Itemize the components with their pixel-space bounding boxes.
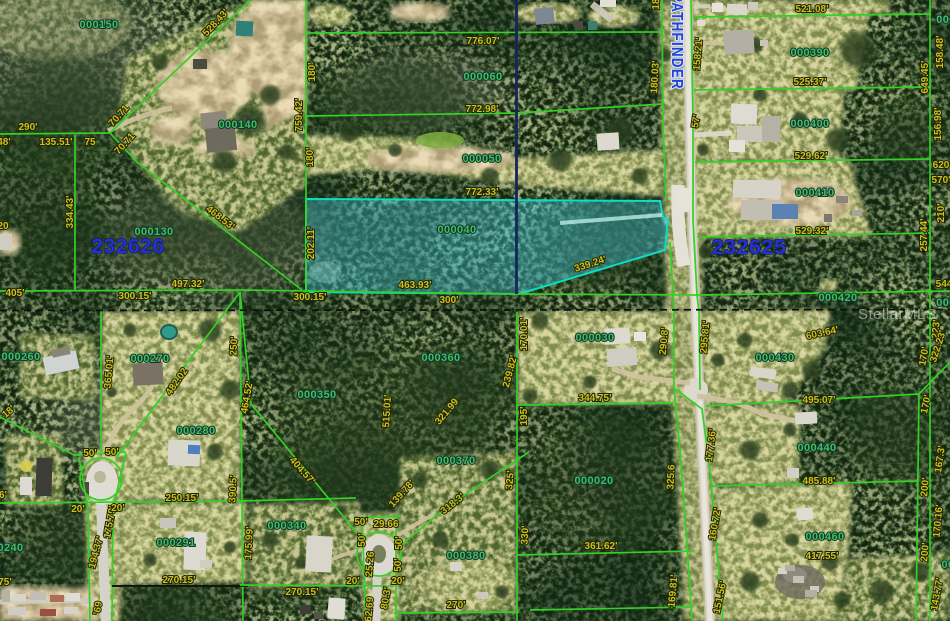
svg-text:270.15': 270.15': [163, 575, 196, 586]
svg-text:000040: 000040: [437, 224, 476, 236]
svg-text:000150: 000150: [79, 19, 118, 31]
svg-text:290': 290': [18, 122, 37, 133]
svg-text:20': 20': [346, 576, 360, 587]
svg-text:000291: 000291: [156, 537, 195, 549]
svg-text:000400: 000400: [790, 118, 829, 130]
svg-text:232625: 232625: [712, 236, 787, 259]
svg-text:515.01': 515.01': [381, 394, 394, 427]
svg-text:200': 200': [919, 542, 932, 562]
svg-text:48': 48': [0, 137, 11, 148]
svg-text:135.51': 135.51': [40, 137, 73, 148]
svg-text:162.69: 162.69: [363, 596, 377, 621]
svg-text:417.55': 417.55': [806, 551, 839, 562]
svg-text:250.15': 250.15': [166, 493, 199, 504]
svg-text:00: 00: [941, 559, 950, 571]
svg-text:270': 270': [446, 600, 465, 611]
svg-text:000020: 000020: [574, 475, 613, 487]
svg-text:180': 180': [307, 62, 318, 81]
svg-text:257.44': 257.44': [919, 219, 930, 252]
svg-text:485.88': 485.88': [803, 476, 836, 487]
svg-text:195': 195': [519, 406, 530, 425]
svg-text:232626: 232626: [92, 235, 165, 258]
svg-text:000050: 000050: [462, 153, 501, 165]
svg-text:25.26: 25.26: [364, 551, 377, 577]
svg-text:759.42': 759.42': [294, 99, 305, 132]
svg-text:776.07': 776.07': [467, 36, 500, 47]
svg-text:000410: 000410: [795, 187, 834, 199]
svg-text:20': 20': [391, 576, 405, 587]
svg-text:000370: 000370: [436, 455, 475, 467]
svg-text:180': 180': [305, 147, 316, 166]
svg-text:75: 75: [84, 137, 96, 148]
svg-text:521.08': 521.08': [796, 4, 829, 15]
svg-text:000380: 000380: [446, 550, 485, 562]
svg-text:270.15': 270.15': [286, 587, 319, 598]
svg-text:000270: 000270: [130, 353, 169, 365]
svg-text:000420: 000420: [818, 292, 857, 304]
svg-text:300.15': 300.15': [294, 292, 327, 303]
svg-text:000440: 000440: [797, 442, 836, 454]
svg-text:000060: 000060: [463, 71, 502, 83]
svg-text:000280: 000280: [176, 425, 215, 437]
svg-text:344.75': 344.75': [579, 393, 612, 404]
svg-text:200': 200': [919, 477, 932, 497]
svg-text:000140: 000140: [218, 119, 257, 131]
svg-text:000340: 000340: [267, 520, 306, 532]
svg-text:000350: 000350: [297, 389, 336, 401]
svg-text:156.98': 156.98': [933, 108, 944, 141]
svg-text:50': 50': [83, 448, 97, 459]
svg-text:20': 20': [71, 504, 85, 515]
svg-text:158.48': 158.48': [935, 36, 946, 69]
svg-text:000: 000: [936, 14, 950, 26]
svg-text:300.15': 300.15': [119, 291, 152, 302]
svg-text:20': 20': [111, 503, 125, 514]
svg-text:529.32': 529.32': [796, 226, 829, 237]
svg-text:497.32': 497.32': [172, 279, 205, 290]
svg-text:75': 75': [0, 577, 12, 588]
svg-text:000: 000: [936, 297, 950, 309]
svg-text:495.07': 495.07': [803, 395, 836, 406]
svg-text:463.93': 463.93': [399, 280, 432, 291]
svg-text:170.01': 170.01': [519, 318, 530, 351]
svg-text:202.11': 202.11': [306, 227, 317, 259]
svg-text:18: 18: [651, 0, 662, 10]
svg-text:210': 210': [936, 203, 947, 222]
svg-text:390.5': 390.5': [227, 475, 239, 503]
svg-text:PATHFINDER: PATHFINDER: [668, 0, 685, 90]
svg-text:000360: 000360: [421, 352, 460, 364]
svg-text:180.03': 180.03': [649, 60, 662, 93]
svg-text:544: 544: [936, 279, 950, 290]
svg-text:29.66: 29.66: [373, 519, 398, 530]
svg-text:529.62': 529.62': [795, 151, 828, 162]
svg-text:525.37': 525.37': [794, 77, 827, 88]
svg-text:000260: 000260: [1, 351, 40, 363]
svg-text:300': 300': [439, 295, 458, 306]
svg-text:361.62': 361.62': [585, 541, 618, 552]
svg-text:000030: 000030: [575, 332, 614, 344]
svg-text:620: 620: [933, 160, 950, 171]
svg-text:50': 50': [105, 447, 119, 458]
svg-text:330': 330': [520, 525, 532, 545]
svg-text:6': 6': [0, 490, 7, 501]
svg-text:000460: 000460: [805, 531, 844, 543]
svg-text:57': 57': [690, 114, 703, 129]
svg-text:20: 20: [0, 221, 9, 232]
svg-text:000430: 000430: [755, 352, 794, 364]
svg-text:50': 50': [394, 536, 405, 550]
svg-text:772.98': 772.98': [466, 104, 499, 115]
svg-text:325.6: 325.6: [665, 464, 677, 490]
svg-text:000390: 000390: [790, 47, 829, 59]
svg-text:50': 50': [393, 558, 404, 572]
svg-text:405': 405': [5, 288, 24, 299]
svg-text:250': 250': [229, 336, 241, 356]
svg-text:50': 50': [357, 533, 368, 547]
svg-text:50': 50': [354, 517, 368, 528]
svg-text:000240: 000240: [0, 542, 24, 554]
svg-text:StellarMLS: StellarMLS: [858, 306, 936, 323]
svg-text:325': 325': [504, 470, 517, 490]
svg-text:649.45': 649.45': [920, 61, 931, 94]
svg-text:334.43': 334.43': [65, 196, 76, 229]
svg-text:175.99': 175.99': [243, 526, 256, 559]
svg-text:570': 570': [931, 175, 950, 186]
svg-text:772.33': 772.33': [466, 187, 499, 198]
